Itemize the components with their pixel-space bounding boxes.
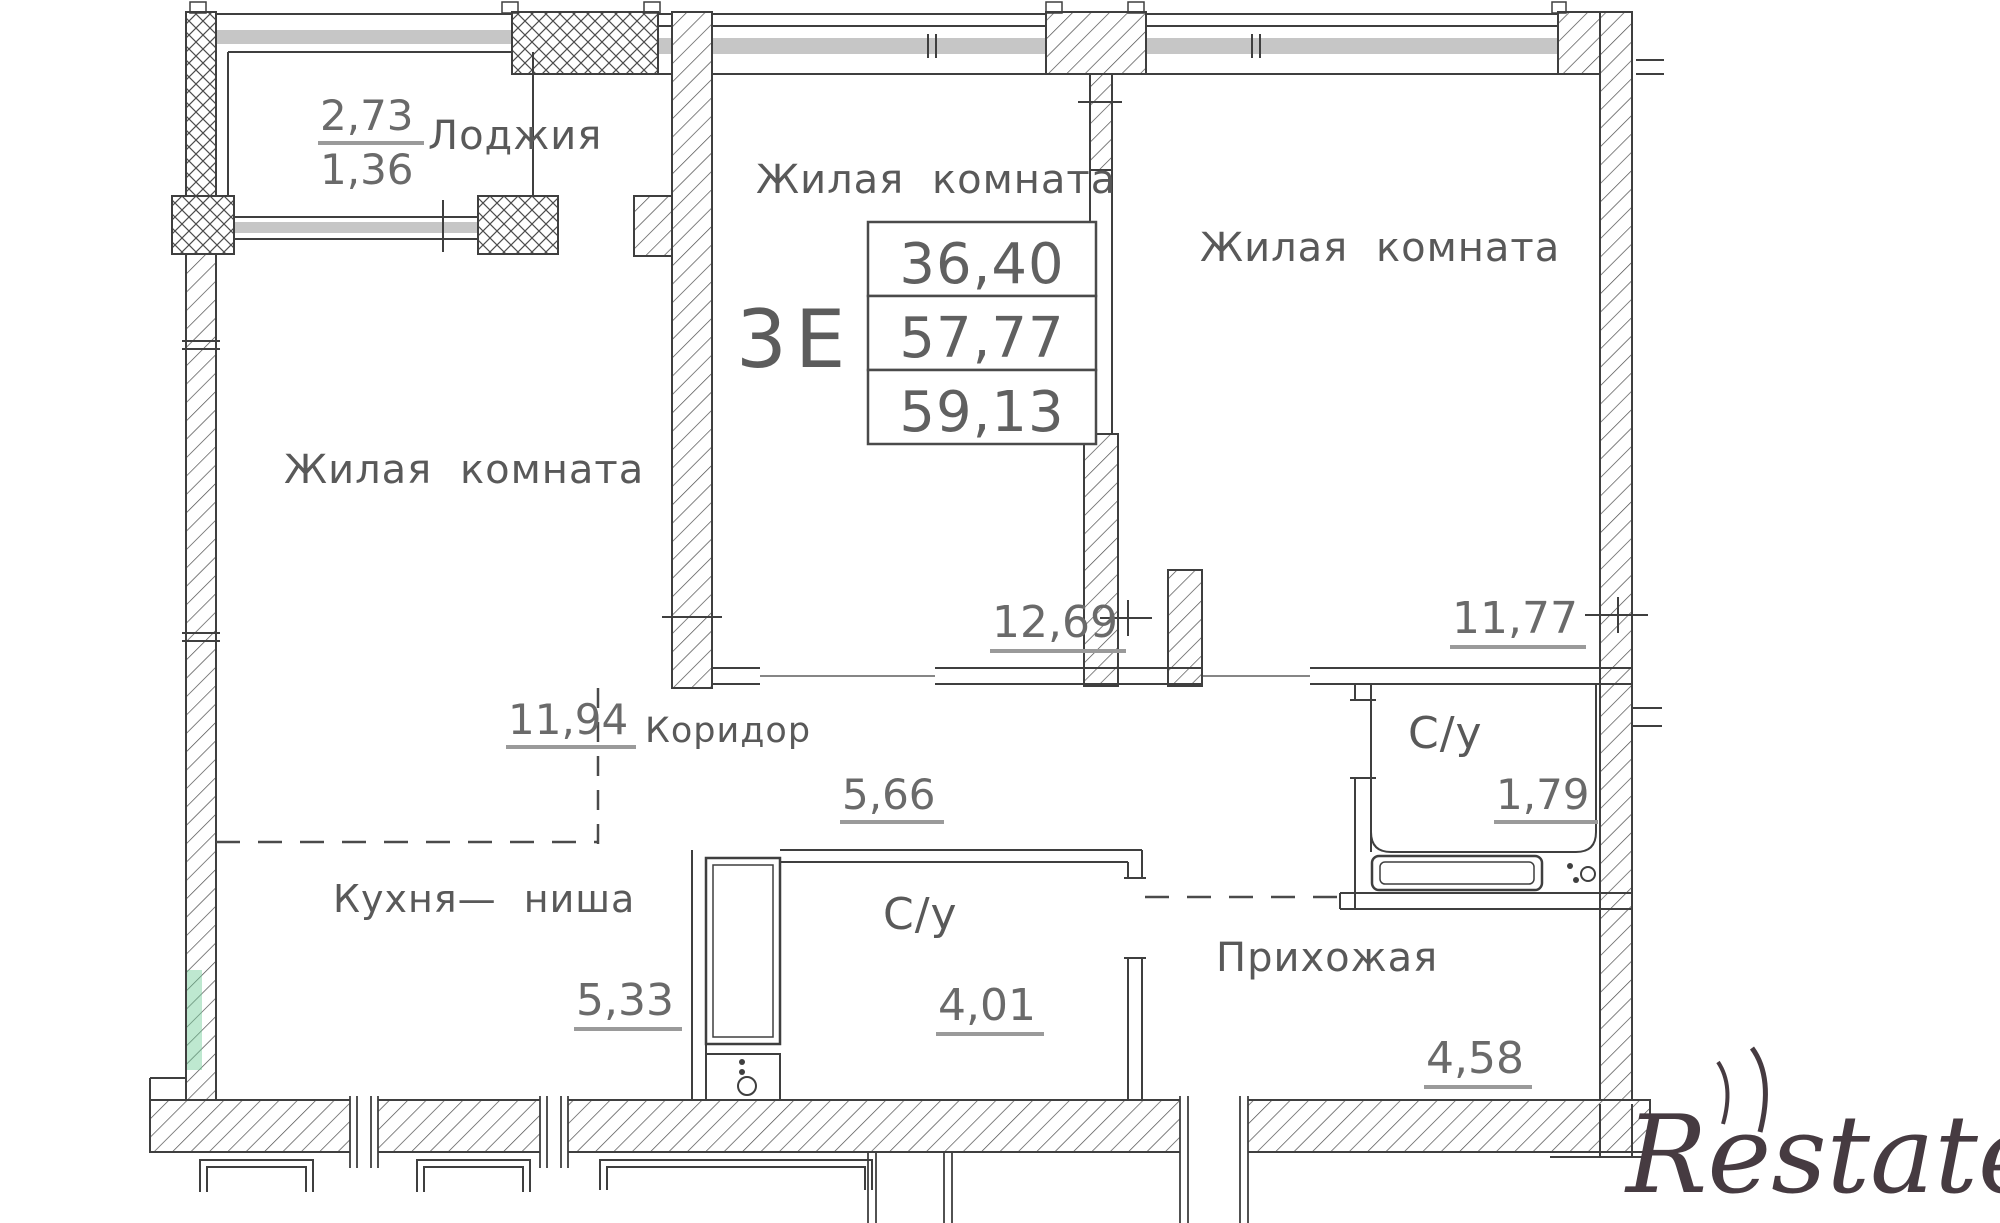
room-area-kitchen-niche: 5,33: [574, 978, 682, 1031]
room-area-living-center: 12,69: [990, 600, 1126, 653]
room-label-living-left: Жилая комната: [284, 450, 644, 490]
unit-type-label: 3Е: [736, 300, 853, 380]
shower-cabinet-fixture: [706, 858, 780, 1044]
wall-highlight-green: [187, 970, 202, 1070]
bathtub-fixture: [1372, 856, 1542, 890]
room-area-living-right: 11,77: [1450, 596, 1586, 649]
unit-living-area: 36,40: [868, 232, 1096, 297]
room-label-corridor: Коридор: [645, 714, 811, 749]
watermark-text: Restate: [1626, 1102, 2000, 1210]
room-area-bathroom-small: 1,79: [1494, 773, 1598, 824]
unit-total-area: 59,13: [868, 380, 1096, 445]
room-label-living-center: Жилая комната: [756, 160, 1116, 200]
loggia-area-reduced: 1,36: [318, 148, 414, 192]
loggia-area-values: 2,73 1,36: [318, 94, 424, 192]
loggia-area-full: 2,73: [318, 94, 424, 145]
room-label-living-right: Жилая комната: [1200, 228, 1560, 268]
room-label-bathroom-small: С/у: [1408, 712, 1483, 756]
wall-notches: [190, 2, 1566, 13]
room-label-hallway: Прихожая: [1216, 938, 1438, 978]
room-area-bathroom-main: 4,01: [936, 983, 1044, 1036]
floorplan-page: 2,73 1,36 Лоджия Жилая комната 11,94 Жил…: [0, 0, 2000, 1223]
bottom-wall-and-neighbors: [150, 1078, 1650, 1223]
room-label-loggia: Лоджия: [428, 116, 602, 156]
room-area-hallway: 4,58: [1424, 1036, 1532, 1089]
faucet-icon: [1581, 867, 1595, 881]
unit-floor-area: 57,77: [868, 306, 1096, 371]
room-area-living-left: 11,94: [506, 698, 636, 749]
room-area-corridor: 5,66: [840, 773, 944, 824]
room-label-kitchen-niche: Кухня— ниша: [333, 880, 635, 918]
room-label-bathroom-main: С/у: [883, 893, 958, 937]
